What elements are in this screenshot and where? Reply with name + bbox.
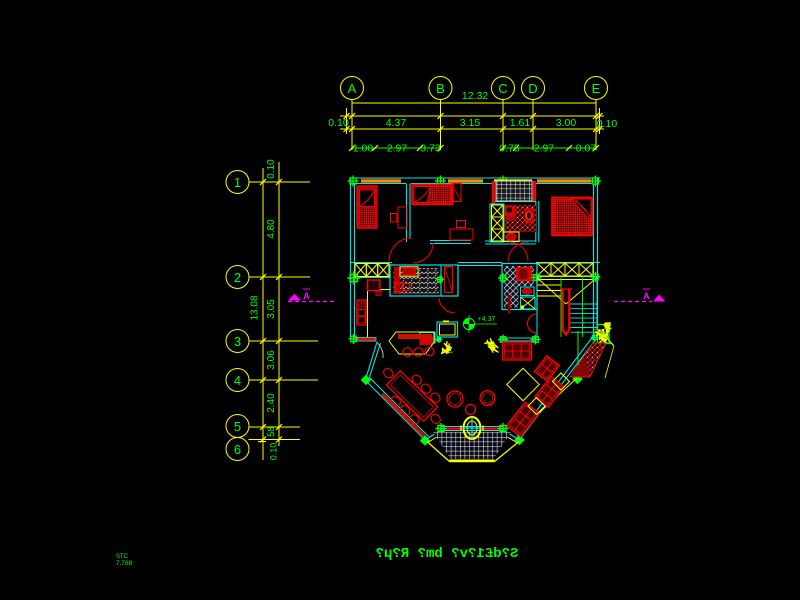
- svg-text:1: 1: [234, 175, 241, 190]
- svg-text:2.40: 2.40: [266, 393, 277, 413]
- svg-text:.58: .58: [266, 427, 276, 440]
- svg-text:13.08: 13.08: [250, 295, 261, 320]
- svg-text:0.10: 0.10: [266, 159, 277, 179]
- svg-text:0.10: 0.10: [269, 443, 279, 461]
- svg-text:E: E: [592, 81, 601, 96]
- svg-text:4.80: 4.80: [266, 219, 277, 239]
- svg-text:+4.37: +4.37: [478, 316, 496, 323]
- svg-text:0.10: 0.10: [597, 118, 618, 130]
- svg-text:3.05: 3.05: [266, 299, 277, 319]
- svg-text:4.37: 4.37: [386, 117, 407, 129]
- svg-text:3: 3: [234, 334, 241, 349]
- svg-text:7.788: 7.788: [116, 560, 133, 567]
- svg-text:0.07: 0.07: [576, 143, 597, 155]
- svg-text:1.61: 1.61: [510, 117, 531, 129]
- svg-text:A: A: [303, 291, 310, 301]
- svg-text:2: 2: [234, 270, 241, 285]
- svg-text:12.32: 12.32: [462, 90, 488, 102]
- svg-text:C: C: [498, 81, 507, 96]
- svg-text:1.00: 1.00: [353, 143, 374, 155]
- svg-text:4: 4: [234, 373, 241, 388]
- svg-text:3.00: 3.00: [556, 117, 577, 129]
- svg-text:0.10: 0.10: [328, 117, 349, 129]
- svg-text:3.06: 3.06: [266, 350, 277, 370]
- svg-text:3.15: 3.15: [460, 117, 481, 129]
- svg-text:2.97: 2.97: [534, 143, 555, 155]
- svg-text:A: A: [348, 81, 357, 96]
- svg-text:D: D: [528, 81, 537, 96]
- svg-text:6: 6: [234, 442, 241, 457]
- svg-text:S?d£1?v? bm? R?µ?: S?d£1?v? bm? R?µ?: [376, 546, 519, 562]
- svg-text:2.97: 2.97: [387, 143, 408, 155]
- svg-text:0.75: 0.75: [499, 143, 520, 155]
- svg-text:B: B: [436, 81, 445, 96]
- svg-text:5: 5: [234, 419, 241, 434]
- svg-text:A: A: [643, 291, 650, 301]
- svg-text:3.73: 3.73: [420, 143, 441, 155]
